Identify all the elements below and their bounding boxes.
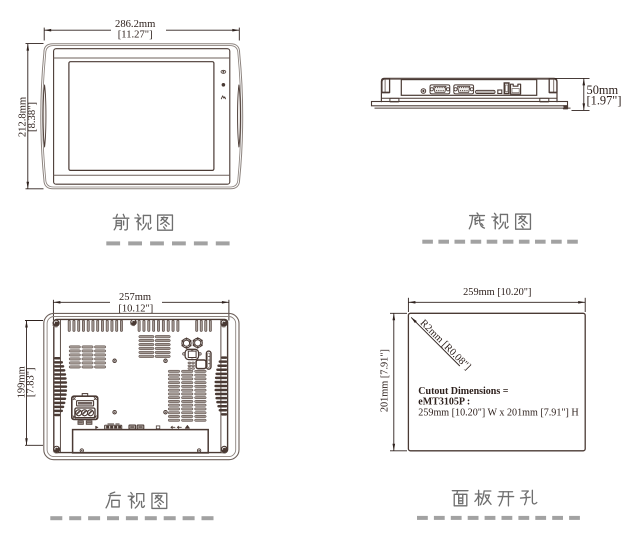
svg-text:[1.97"]: [1.97"]: [587, 93, 622, 107]
svg-text:[7.83"]: [7.83"]: [26, 367, 37, 397]
svg-text:257mm: 257mm: [119, 292, 151, 303]
svg-text:[10.12"]: [10.12"]: [118, 303, 153, 314]
svg-text:[8.38"]: [8.38"]: [27, 102, 38, 132]
svg-text:[11.27"]: [11.27"]: [118, 30, 153, 41]
svg-text:286.2mm: 286.2mm: [115, 19, 156, 30]
svg-text:Cutout Dimensions =: Cutout Dimensions =: [418, 386, 508, 397]
svg-text:R2mm [R0.08"]: R2mm [R0.08"]: [418, 318, 473, 373]
svg-text:201mm [7.91"]: 201mm [7.91"]: [380, 349, 391, 412]
svg-text:eMT3105P :: eMT3105P :: [418, 397, 470, 408]
svg-text:259mm [10.20"] W x 201mm [7.91: 259mm [10.20"] W x 201mm [7.91"] H: [418, 407, 578, 418]
svg-text:259mm [10.20"]: 259mm [10.20"]: [463, 287, 531, 298]
